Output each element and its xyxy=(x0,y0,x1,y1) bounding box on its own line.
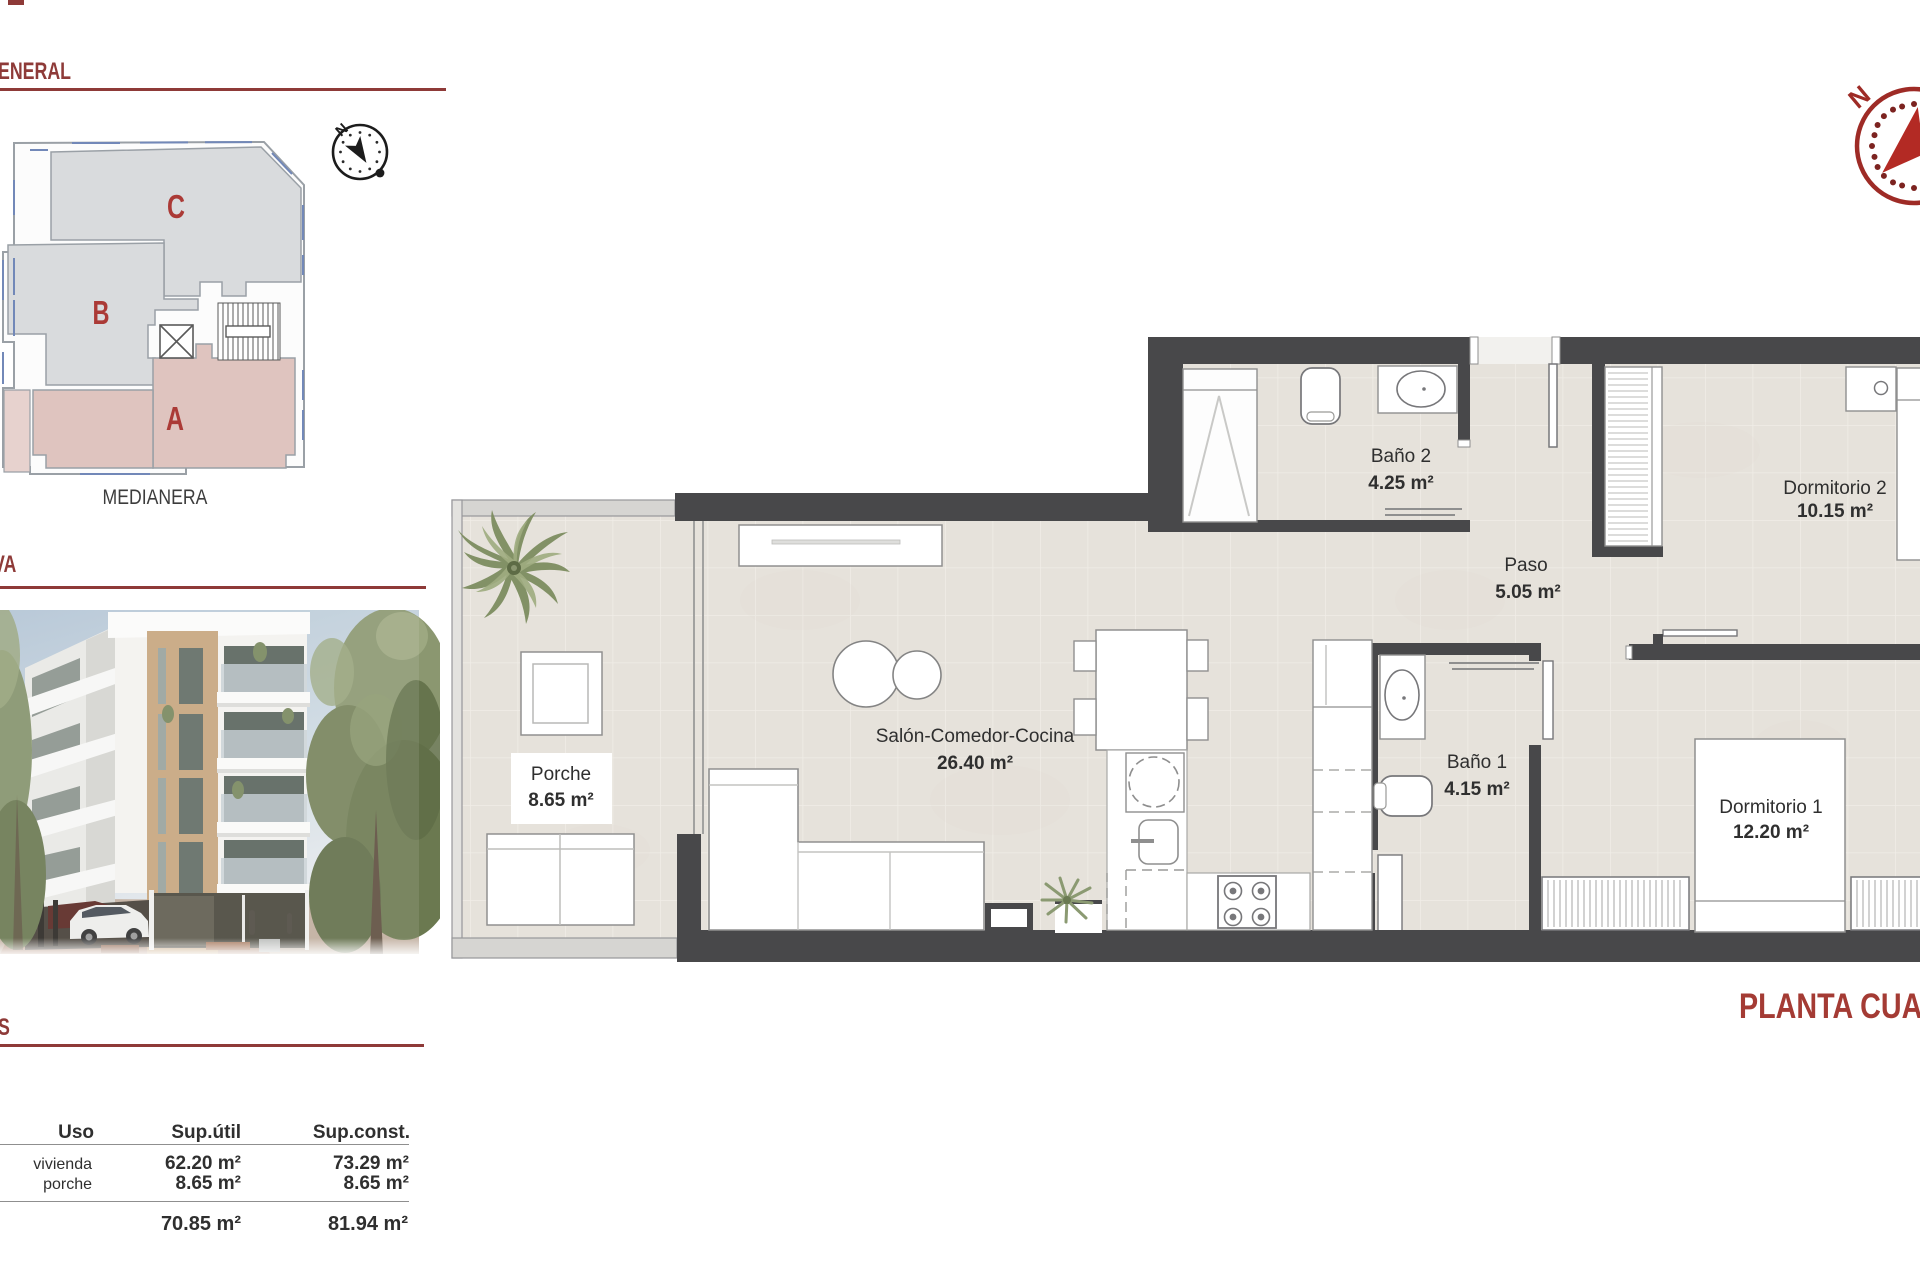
svg-text:Paso: Paso xyxy=(1504,555,1547,576)
svg-text:12.20 m²: 12.20 m² xyxy=(1733,822,1809,843)
svg-text:A: A xyxy=(166,400,184,437)
svg-text:Salón-Comedor-Cocina: Salón-Comedor-Cocina xyxy=(876,726,1075,747)
svg-text:Porche: Porche xyxy=(531,764,591,785)
svg-text:Baño 2: Baño 2 xyxy=(1371,446,1431,467)
svg-text:4.15 m²: 4.15 m² xyxy=(1444,779,1509,800)
svg-text:B: B xyxy=(93,294,110,331)
svg-text:26.40 m²: 26.40 m² xyxy=(937,753,1013,774)
svg-text:8.65 m²: 8.65 m² xyxy=(528,790,593,811)
svg-text:5.05 m²: 5.05 m² xyxy=(1495,582,1560,603)
svg-text:Baño 1: Baño 1 xyxy=(1447,752,1507,773)
svg-text:4.25 m²: 4.25 m² xyxy=(1368,473,1433,494)
svg-text:Dormitorio 1: Dormitorio 1 xyxy=(1719,797,1822,818)
svg-text:10.15 m²: 10.15 m² xyxy=(1797,501,1873,522)
svg-text:Dormitorio 2: Dormitorio 2 xyxy=(1783,478,1886,499)
svg-text:N: N xyxy=(332,120,351,140)
svg-text:C: C xyxy=(167,188,185,225)
